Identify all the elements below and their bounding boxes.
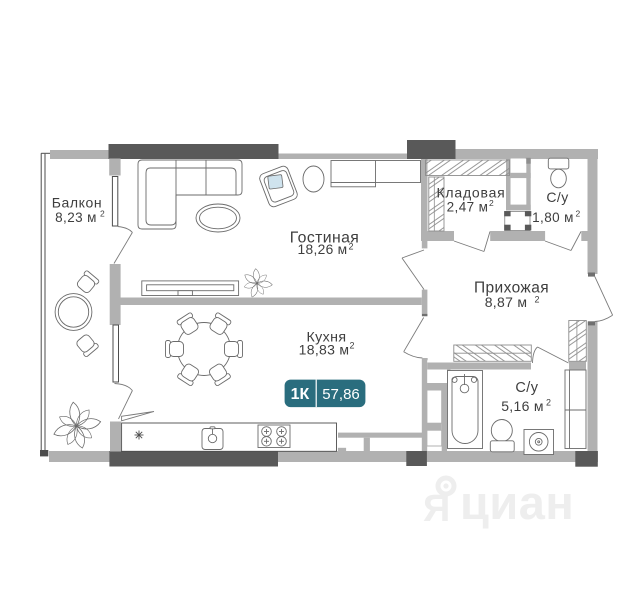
svg-text:циан: циан bbox=[460, 476, 574, 529]
svg-text:2: 2 bbox=[535, 295, 540, 305]
svg-text:8,87 м: 8,87 м bbox=[485, 294, 528, 310]
svg-text:Кладовая: Кладовая bbox=[436, 185, 505, 201]
svg-text:2,47 м: 2,47 м bbox=[447, 200, 489, 215]
svg-text:2: 2 bbox=[546, 398, 551, 408]
svg-text:1К: 1К bbox=[291, 386, 310, 403]
svg-text:18,83 м: 18,83 м bbox=[299, 342, 350, 358]
svg-text:Балкон: Балкон bbox=[52, 195, 103, 211]
svg-text:8,23 м: 8,23 м bbox=[55, 210, 97, 225]
svg-text:5,16 м: 5,16 м bbox=[501, 398, 544, 414]
svg-text:2: 2 bbox=[100, 209, 105, 219]
svg-text:57,86: 57,86 bbox=[322, 386, 360, 403]
svg-text:С/у: С/у bbox=[546, 189, 568, 205]
svg-text:18,26 м: 18,26 м bbox=[298, 242, 348, 257]
svg-text:2: 2 bbox=[350, 341, 355, 351]
svg-text:2: 2 bbox=[349, 242, 354, 252]
svg-text:1,80 м: 1,80 м bbox=[532, 210, 574, 225]
svg-text:2: 2 bbox=[576, 209, 581, 219]
svg-text:Я: Я bbox=[423, 488, 450, 530]
svg-text:2: 2 bbox=[489, 198, 494, 208]
svg-text:С/у: С/у bbox=[515, 380, 538, 396]
